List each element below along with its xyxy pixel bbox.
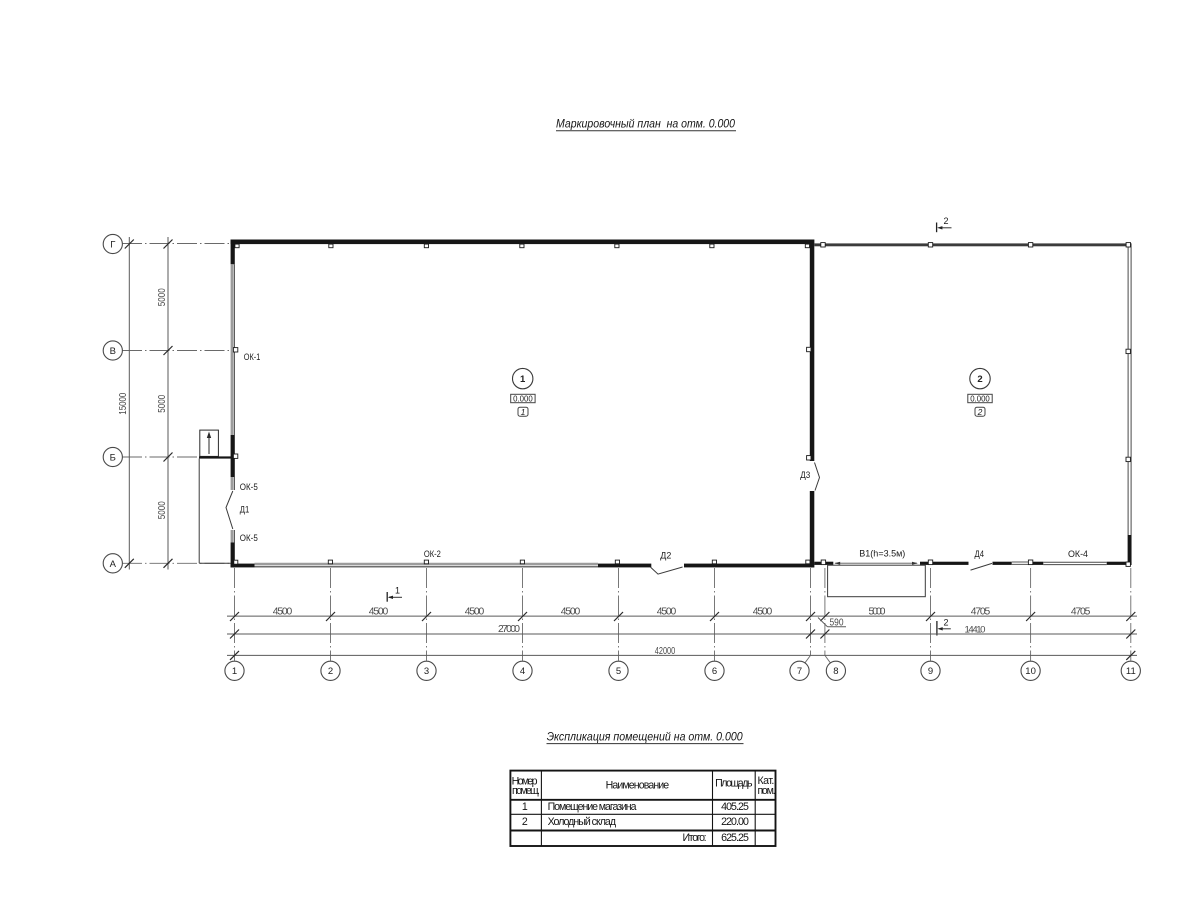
svg-text:0.000: 0.000	[513, 393, 533, 403]
svg-text:1: 1	[232, 666, 237, 677]
svg-text:2: 2	[943, 216, 948, 226]
svg-text:4500: 4500	[561, 607, 581, 618]
svg-text:ОК-2: ОК-2	[424, 549, 441, 559]
svg-text:4: 4	[520, 666, 525, 677]
svg-text:Б: Б	[110, 453, 116, 464]
svg-text:1: 1	[522, 801, 528, 813]
svg-text:А: А	[110, 559, 117, 570]
svg-text:Г: Г	[110, 240, 115, 251]
svg-text:8: 8	[833, 666, 838, 677]
svg-text:14410: 14410	[965, 625, 986, 636]
svg-text:6: 6	[712, 666, 717, 677]
svg-text:Д2: Д2	[660, 551, 671, 561]
svg-text:пом.: пом.	[757, 785, 775, 797]
svg-text:42000: 42000	[655, 646, 676, 657]
svg-text:1: 1	[520, 374, 526, 385]
svg-text:2: 2	[522, 816, 528, 828]
svg-text:Наименование: Наименование	[606, 779, 670, 791]
svg-text:590: 590	[830, 618, 844, 629]
svg-text:4500: 4500	[273, 607, 293, 618]
svg-text:Д3: Д3	[800, 470, 810, 480]
svg-text:ОК-1: ОК-1	[244, 352, 261, 362]
svg-text:Холодный склад: Холодный склад	[548, 816, 616, 828]
svg-text:9: 9	[928, 666, 933, 677]
svg-text:3: 3	[424, 666, 429, 677]
svg-text:0.000: 0.000	[970, 393, 990, 403]
svg-text:7: 7	[797, 666, 802, 677]
svg-text:4705: 4705	[971, 607, 991, 618]
svg-text:Маркировочный план на отм. 0.: Маркировочный план на отм. 0.000	[556, 118, 736, 130]
svg-text:4705: 4705	[1071, 607, 1091, 618]
svg-text:27000: 27000	[498, 624, 520, 635]
svg-text:4500: 4500	[369, 607, 389, 618]
svg-text:ОК-5: ОК-5	[240, 482, 258, 492]
svg-text:ОК-4: ОК-4	[1068, 549, 1088, 559]
svg-text:4500: 4500	[465, 607, 485, 618]
svg-text:2: 2	[943, 618, 948, 628]
svg-text:помещ.: помещ.	[512, 785, 540, 797]
svg-text:5000: 5000	[157, 395, 168, 413]
svg-text:ОК-5: ОК-5	[240, 533, 258, 543]
svg-text:1: 1	[521, 407, 526, 417]
svg-text:11: 11	[1126, 666, 1136, 677]
svg-text:В: В	[110, 346, 116, 357]
svg-text:220.00: 220.00	[721, 816, 749, 828]
svg-text:В1(h=3.5м): В1(h=3.5м)	[859, 549, 905, 559]
svg-text:Итого:: Итого:	[683, 832, 707, 844]
svg-text:2: 2	[977, 374, 982, 385]
svg-text:10: 10	[1025, 666, 1036, 677]
svg-text:2: 2	[977, 407, 983, 417]
svg-text:Экспликация помещений на отм.: Экспликация помещений на отм. 0.000	[547, 731, 744, 743]
svg-text:4500: 4500	[657, 607, 677, 618]
svg-text:5000: 5000	[157, 501, 168, 519]
svg-text:Площадь: Площадь	[715, 778, 753, 790]
svg-text:5: 5	[616, 666, 621, 677]
svg-text:Д1: Д1	[240, 505, 250, 515]
svg-text:5000: 5000	[157, 288, 168, 306]
svg-text:4500: 4500	[753, 607, 773, 618]
svg-text:5000: 5000	[869, 607, 886, 618]
svg-text:15000: 15000	[118, 392, 129, 414]
svg-text:2: 2	[328, 666, 333, 677]
svg-text:1: 1	[395, 586, 400, 596]
svg-text:625.25: 625.25	[721, 832, 749, 844]
svg-text:405.25: 405.25	[721, 801, 749, 813]
svg-text:Д4: Д4	[975, 549, 985, 559]
svg-text:Помещение магазина: Помещение магазина	[548, 801, 637, 813]
